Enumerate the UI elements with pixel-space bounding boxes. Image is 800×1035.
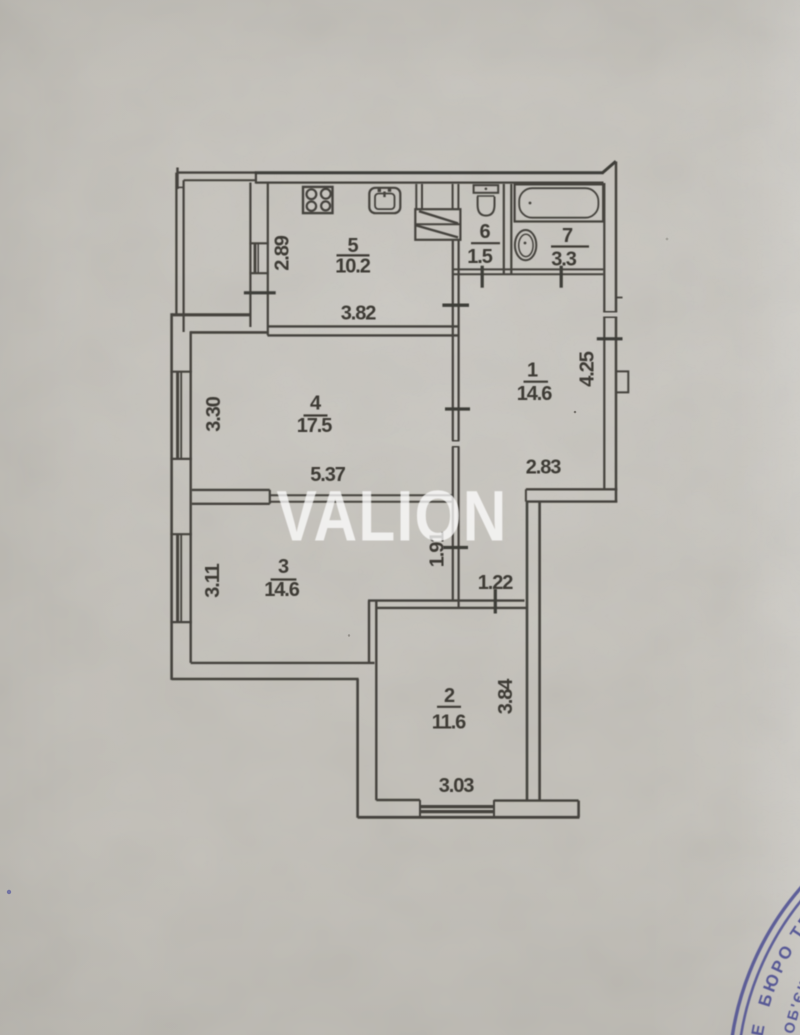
svg-text:14.6: 14.6 [517,383,553,405]
svg-text:3.11: 3.11 [202,563,224,597]
svg-text:4.25: 4.25 [577,351,599,387]
svg-text:6: 6 [479,221,490,243]
svg-text:10.2: 10.2 [335,256,371,278]
svg-text:11.6: 11.6 [432,712,466,734]
svg-text:3.3: 3.3 [551,249,576,271]
svg-text:1.22: 1.22 [478,572,514,594]
svg-text:4: 4 [310,393,322,415]
svg-text:2: 2 [444,685,455,707]
svg-text:2.83: 2.83 [526,457,562,479]
svg-text:3.30: 3.30 [203,396,225,432]
svg-text:3.82: 3.82 [341,303,377,325]
svg-text:3.84: 3.84 [495,678,517,715]
svg-text:2.89: 2.89 [272,235,294,271]
svg-text:5: 5 [347,235,358,257]
svg-text:3: 3 [278,556,289,578]
svg-text:7: 7 [562,225,573,247]
svg-text:1: 1 [527,360,538,382]
svg-text:17.5: 17.5 [297,415,333,437]
svg-text:VALION: VALION [276,476,507,556]
svg-text:3.03: 3.03 [439,775,475,797]
svg-text:14.6: 14.6 [264,579,300,601]
svg-text:1.5: 1.5 [467,246,492,268]
